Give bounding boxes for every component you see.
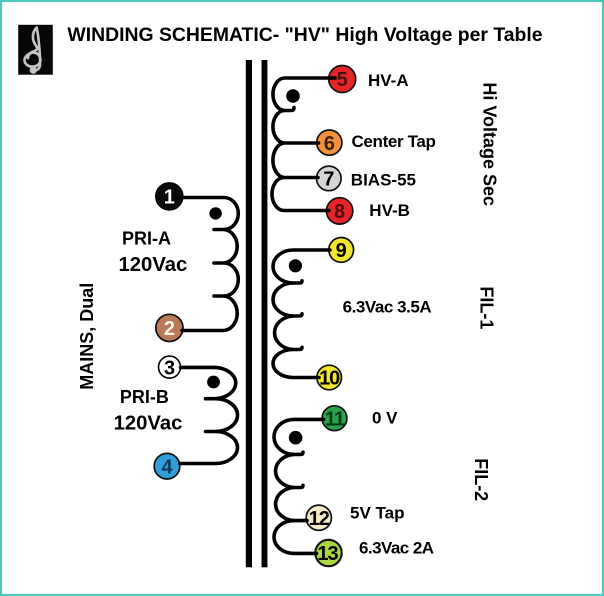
svg-text:5V Tap: 5V Tap bbox=[350, 504, 404, 523]
svg-text:Center Tap: Center Tap bbox=[352, 132, 436, 151]
svg-text:PRI-B: PRI-B bbox=[120, 387, 169, 407]
svg-text:BIAS-55: BIAS-55 bbox=[351, 170, 416, 189]
svg-text:0 V: 0 V bbox=[372, 408, 398, 427]
svg-text:2: 2 bbox=[164, 318, 175, 340]
svg-text:10: 10 bbox=[319, 368, 340, 390]
svg-text:4: 4 bbox=[161, 456, 173, 478]
svg-text:HV-B: HV-B bbox=[369, 201, 410, 220]
svg-text:6.3Vac 2A: 6.3Vac 2A bbox=[359, 539, 434, 558]
svg-text:FIL-2: FIL-2 bbox=[471, 458, 491, 501]
svg-text:FIL-1: FIL-1 bbox=[476, 286, 496, 329]
svg-text:5: 5 bbox=[337, 69, 348, 91]
svg-text:6.3Vac 3.5A: 6.3Vac 3.5A bbox=[343, 298, 432, 317]
svg-text:12: 12 bbox=[309, 508, 330, 530]
svg-text:HV-A: HV-A bbox=[368, 71, 409, 90]
svg-text:PRI-A: PRI-A bbox=[122, 228, 171, 248]
svg-text:7: 7 bbox=[323, 169, 334, 191]
svg-text:120Vac: 120Vac bbox=[114, 412, 183, 434]
svg-text:MAINS, Dual: MAINS, Dual bbox=[77, 283, 97, 390]
svg-text:1: 1 bbox=[164, 187, 175, 209]
svg-text:11: 11 bbox=[325, 408, 345, 430]
svg-text:13: 13 bbox=[317, 543, 338, 565]
svg-text:WINDING SCHEMATIC- "HV" High V: WINDING SCHEMATIC- "HV" High Voltage per… bbox=[67, 24, 542, 46]
svg-text:6: 6 bbox=[324, 133, 335, 155]
svg-text:120Vac: 120Vac bbox=[119, 254, 188, 276]
svg-text:3: 3 bbox=[164, 357, 175, 379]
svg-text:8: 8 bbox=[334, 201, 345, 223]
svg-text:9: 9 bbox=[336, 240, 347, 262]
svg-text:Hi Voltage Sec: Hi Voltage Sec bbox=[480, 82, 500, 206]
